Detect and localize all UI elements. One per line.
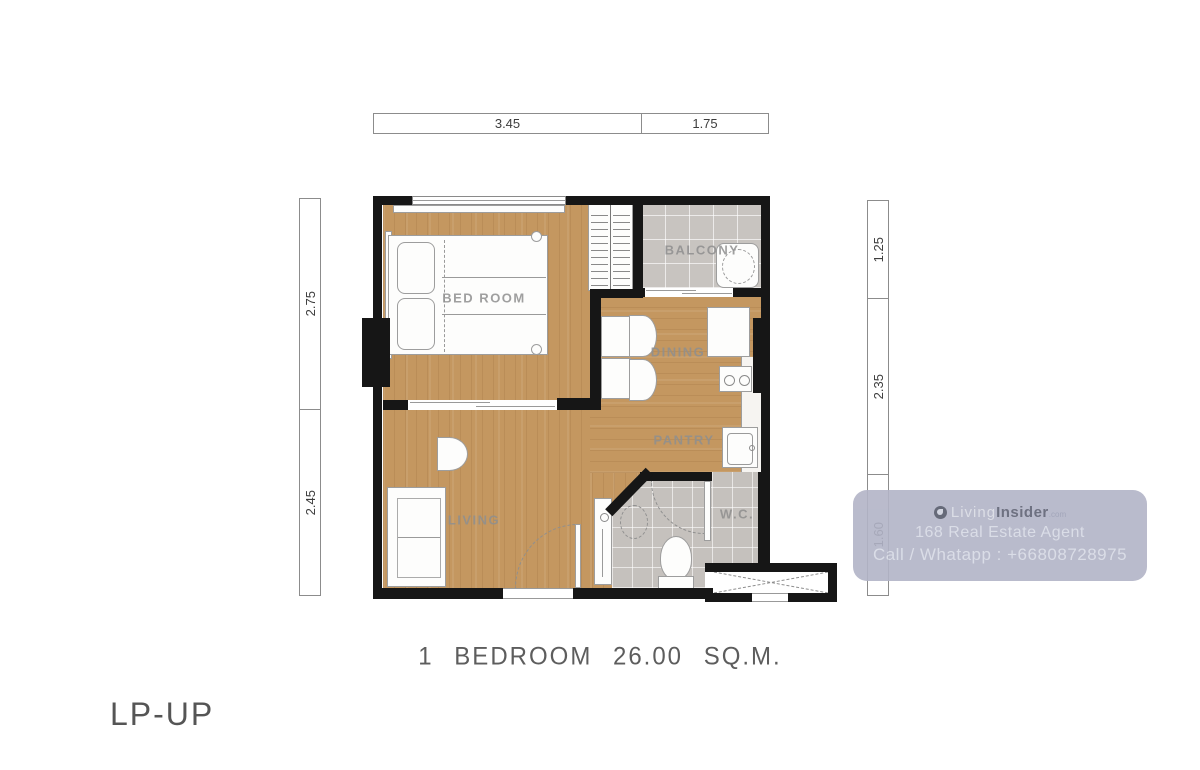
tv-line [602, 529, 603, 577]
brand-tld: .com [1049, 510, 1066, 519]
sliding-door-panel [646, 290, 696, 291]
dimension-left-2: 2.45 [300, 409, 320, 595]
wall-bedroom-bottom-right [557, 398, 601, 410]
dimension-bar-left: 2.75 2.45 [299, 198, 321, 596]
stove-burner [739, 375, 750, 386]
wardrobe-clothes [613, 209, 630, 286]
sink-faucet [749, 445, 755, 451]
wall-bedroom-dining [590, 297, 601, 410]
brand-bold: Insider [996, 504, 1049, 521]
plan-code-label: LP-UP [110, 696, 214, 733]
bed-pillow [397, 298, 435, 350]
wall-ledge-top [705, 563, 837, 572]
sliding-door-panel [682, 293, 732, 294]
dining-table [601, 358, 631, 399]
dimension-left-1: 2.75 [300, 199, 320, 409]
bed-corner-knob [531, 344, 542, 355]
dining-label: DINING [651, 345, 706, 360]
wardrobe-clothes [591, 209, 608, 286]
bedroom-window [412, 196, 566, 205]
dining-table [601, 316, 631, 357]
bed-blanket-line [442, 277, 546, 278]
pantry-label: PANTRY [654, 433, 715, 448]
bedroom-label: BED ROOM [442, 291, 526, 306]
wall-wardrobe-right [633, 196, 643, 298]
dimension-top-2: 1.75 [641, 114, 768, 133]
fridge [707, 307, 750, 357]
floorplan-page: 3.45 1.75 2.75 2.45 1.25 2.35 1.60 [0, 0, 1200, 770]
wardrobe [588, 204, 633, 291]
stove-burner [724, 375, 735, 386]
sofa [387, 487, 446, 587]
balcony-sliding-door [645, 288, 733, 297]
ledge-threshold [752, 593, 788, 602]
sofa-cushion-divider [398, 537, 440, 538]
wall-wc-right [758, 472, 767, 572]
sliding-door-panel [410, 402, 490, 403]
bed-pillow [397, 242, 435, 294]
balcony-label: BALCONY [665, 243, 740, 258]
tv-knob [600, 513, 609, 522]
wall-pier-right [753, 318, 770, 393]
stove [719, 366, 752, 392]
entrance-door-leaf [575, 524, 581, 588]
dimension-bar-top: 3.45 1.75 [373, 113, 769, 134]
watermark-overlay: LivingInsider.com 168 Real Estate Agent … [853, 490, 1147, 581]
sliding-door-panel [476, 406, 555, 407]
kitchen-sink [722, 427, 758, 468]
dining-chair [629, 359, 657, 401]
watermark-brand: LivingInsider.com [853, 504, 1147, 521]
livinginsider-logo-icon [934, 506, 947, 519]
wardrobe-rail [610, 205, 611, 290]
bedroom-sliding-door [408, 400, 557, 410]
unit-caption: 1 BEDROOM 26.00 SQ.M. [350, 642, 850, 671]
bathroom-door-leaf [704, 481, 711, 541]
dimension-top-1: 3.45 [374, 114, 641, 133]
brand-light: Living [951, 504, 996, 521]
entrance-threshold [503, 588, 573, 599]
sofa-cushion [397, 498, 441, 578]
window-glass-line [413, 200, 565, 201]
shower-area-mark [620, 505, 648, 539]
window-bench [393, 205, 565, 213]
bed-blanket-line [442, 314, 546, 315]
wall-pier-left [362, 318, 390, 387]
watermark-agent-line: 168 Real Estate Agent [853, 524, 1147, 542]
wall-bedroom-bottom-left [383, 400, 408, 410]
dimension-right-2: 2.35 [868, 298, 888, 474]
wall-left [373, 196, 382, 598]
watermark-contact-line: Call / Whatapp : +66808728975 [853, 545, 1147, 565]
toilet-bowl [660, 536, 692, 580]
bed-corner-knob [531, 231, 542, 242]
living-label: LIVING [448, 513, 500, 528]
wc-label: W.C. [720, 507, 754, 522]
dimension-right-1: 1.25 [868, 201, 888, 298]
